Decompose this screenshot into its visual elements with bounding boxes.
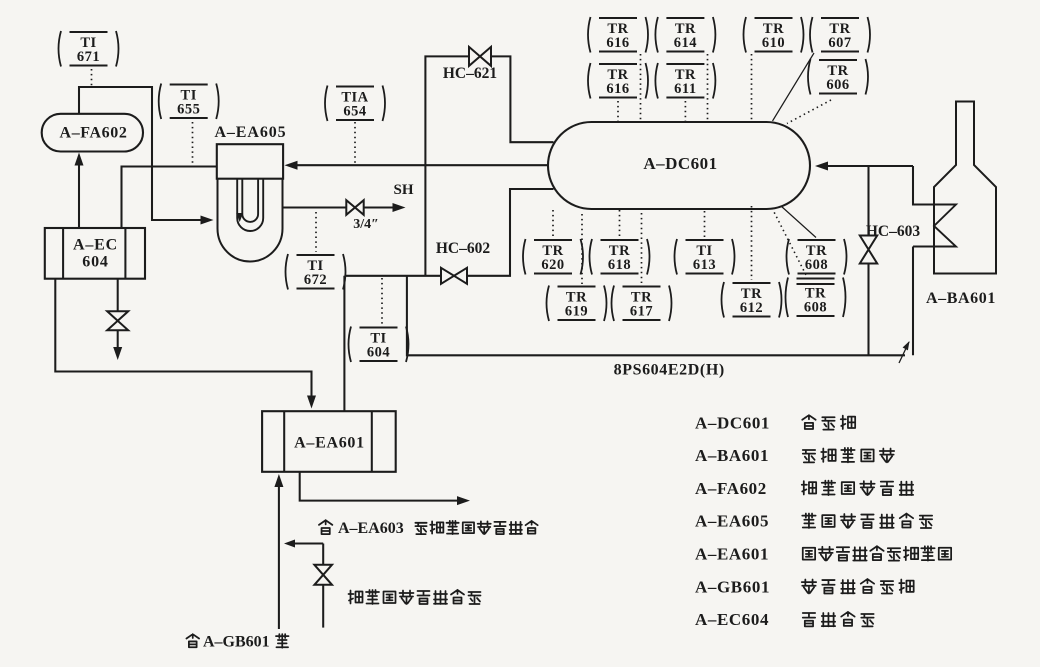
svg-text:618: 618 [608, 257, 631, 273]
svg-text:612: 612 [740, 300, 763, 316]
svg-text:A–DC601: A–DC601 [643, 154, 717, 173]
svg-text:A–EA601: A–EA601 [294, 435, 365, 452]
svg-text:A–BA601: A–BA601 [695, 446, 769, 465]
svg-text:654: 654 [343, 104, 366, 120]
svg-text:A–EA605: A–EA605 [695, 512, 769, 531]
svg-text:616: 616 [606, 81, 629, 97]
svg-text:607: 607 [828, 35, 851, 51]
svg-text:608: 608 [804, 300, 827, 316]
svg-text:A–DC601: A–DC601 [695, 413, 770, 432]
svg-text:A–EA605: A–EA605 [214, 124, 286, 141]
svg-text:671: 671 [77, 49, 100, 65]
svg-text:604: 604 [367, 345, 390, 361]
svg-text:A–FA602: A–FA602 [695, 479, 767, 498]
svg-text:606: 606 [826, 77, 849, 93]
svg-text:611: 611 [674, 81, 696, 97]
svg-text:A–EA601: A–EA601 [695, 545, 769, 564]
svg-text:620: 620 [541, 257, 564, 273]
svg-text:3/4″: 3/4″ [353, 217, 379, 232]
svg-text:A–EC: A–EC [73, 237, 118, 254]
svg-text:617: 617 [630, 304, 653, 320]
svg-text:604: 604 [82, 254, 108, 271]
svg-text:A–GB601: A–GB601 [695, 577, 770, 596]
svg-text:616: 616 [606, 35, 629, 51]
svg-text:HC–621: HC–621 [443, 65, 497, 82]
svg-text:A–EA603: A–EA603 [338, 520, 404, 537]
svg-text:SH: SH [393, 182, 413, 198]
svg-text:608: 608 [805, 257, 828, 273]
svg-text:A–FA602: A–FA602 [60, 125, 128, 142]
svg-text:672: 672 [304, 272, 327, 288]
svg-text:8PS604E2D(H): 8PS604E2D(H) [614, 362, 725, 379]
svg-text:613: 613 [693, 257, 716, 273]
svg-text:655: 655 [177, 102, 200, 118]
svg-text:A–BA601: A–BA601 [926, 290, 996, 307]
svg-text:HC–603: HC–603 [866, 223, 921, 240]
svg-text:614: 614 [674, 35, 697, 51]
svg-text:A–GB601: A–GB601 [203, 634, 270, 651]
svg-text:A–EC604: A–EC604 [695, 610, 769, 629]
svg-text:HC–602: HC–602 [436, 240, 491, 257]
svg-text:619: 619 [565, 304, 588, 320]
svg-text:610: 610 [762, 35, 785, 51]
